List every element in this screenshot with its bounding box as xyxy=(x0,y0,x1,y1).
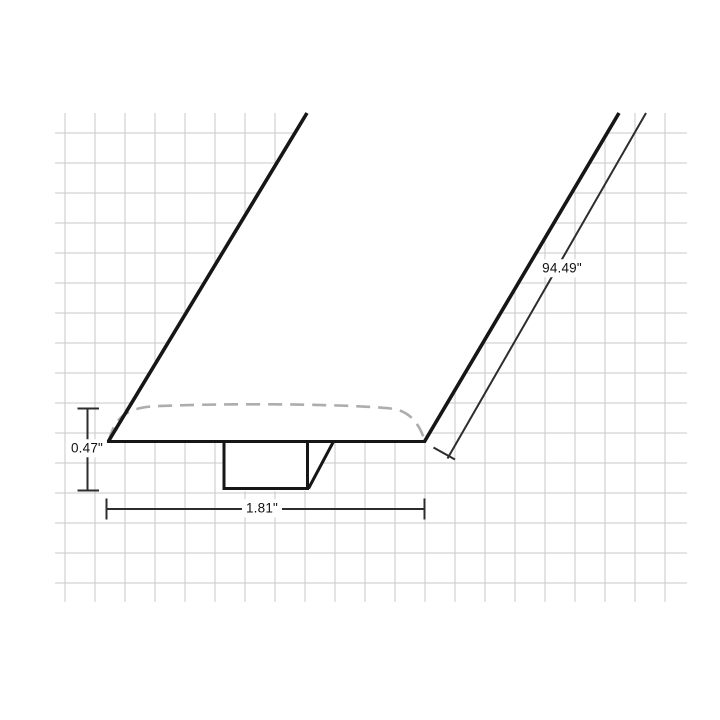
technical-drawing-canvas: 0.47" 1.81" 94.49" xyxy=(0,0,720,720)
height-dimension-label: 0.47" xyxy=(67,439,107,457)
tongue-mask xyxy=(223,440,334,491)
length-dimension-label: 94.49" xyxy=(538,259,586,277)
profile-crown-mask xyxy=(109,404,425,442)
molding-profile-diagram xyxy=(0,0,720,720)
width-dimension-label: 1.81" xyxy=(242,499,282,517)
